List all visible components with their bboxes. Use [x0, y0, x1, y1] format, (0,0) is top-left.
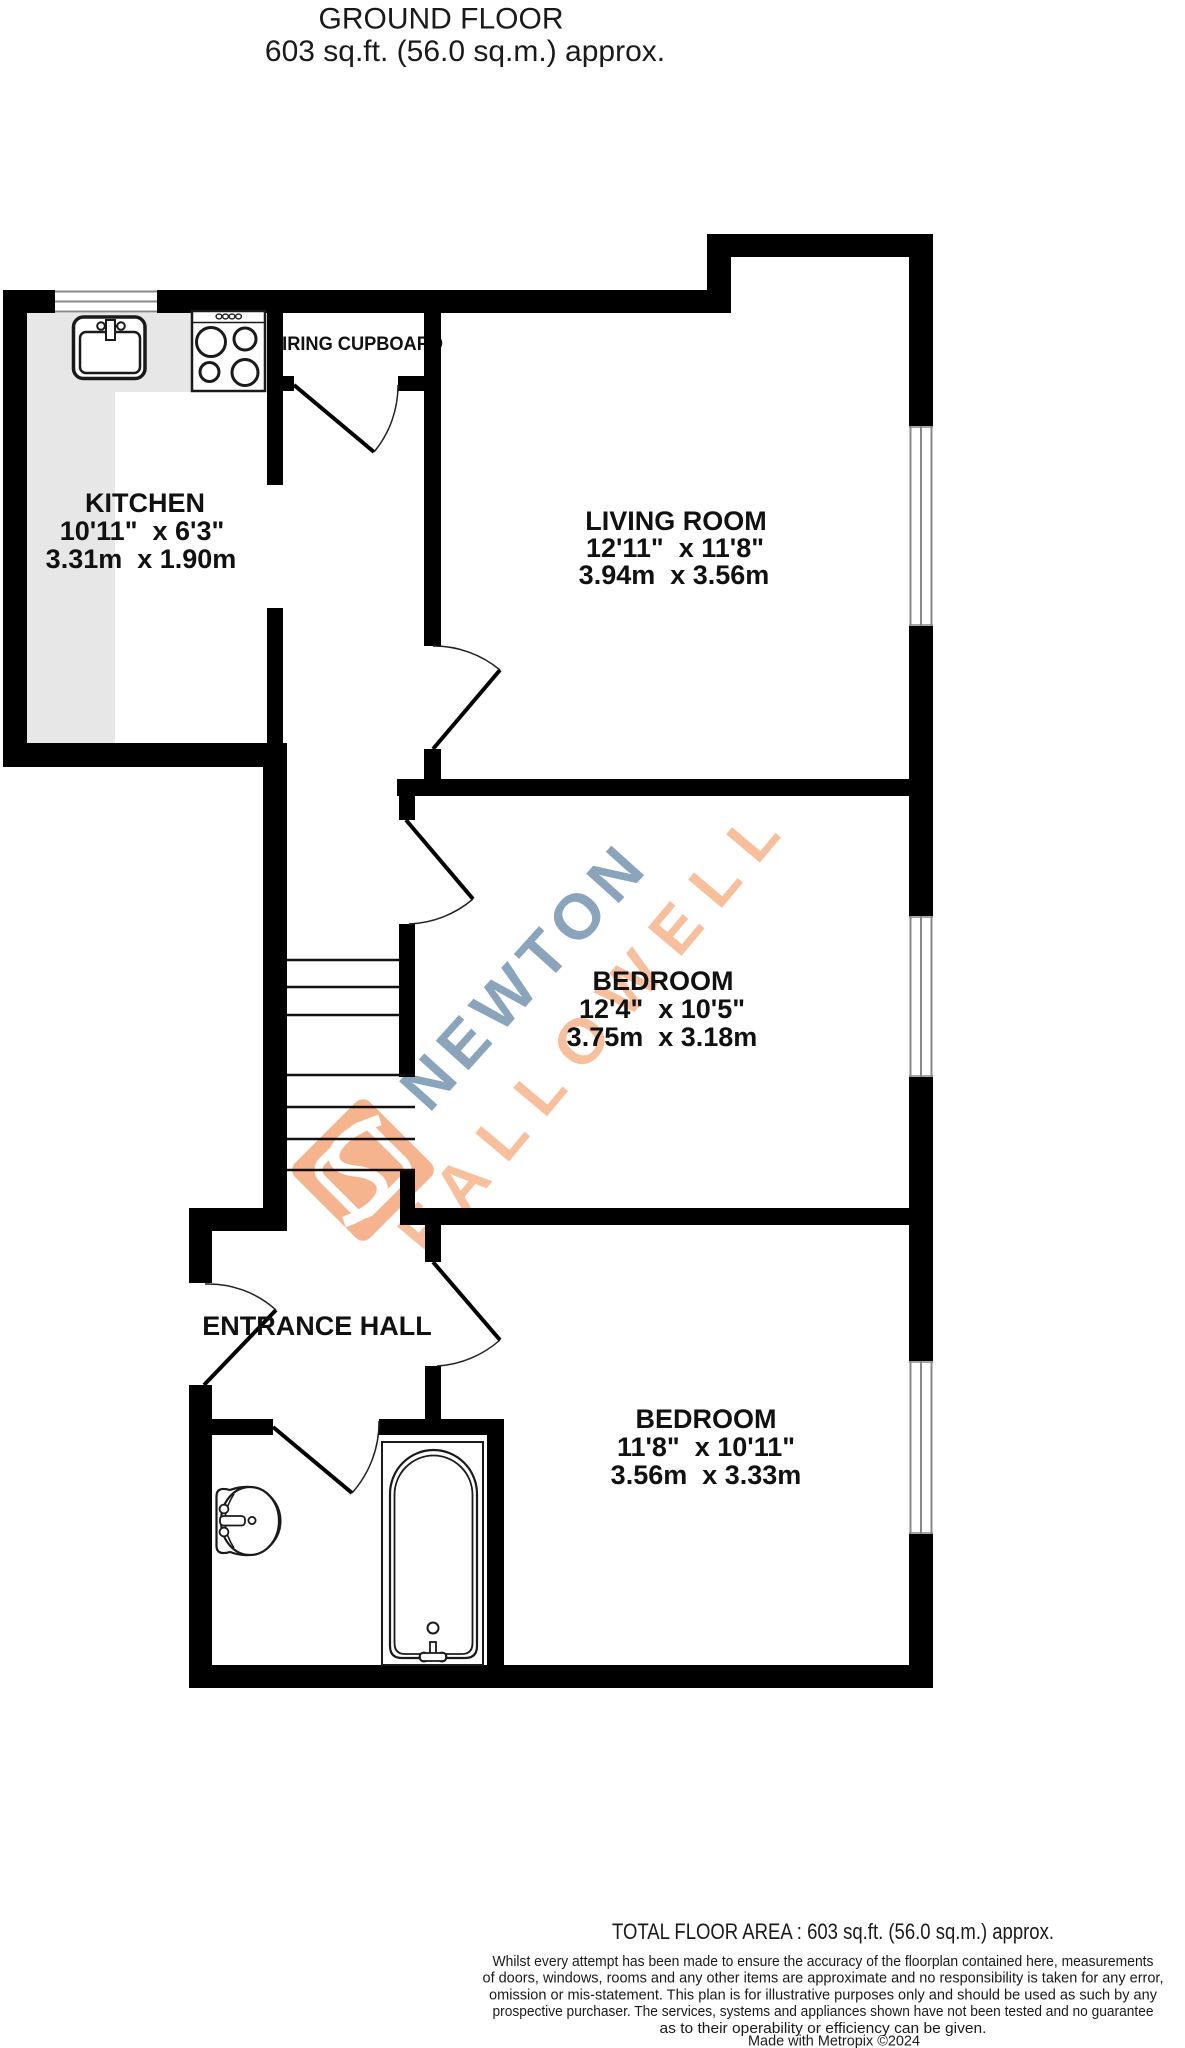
svg-text:KITCHEN: KITCHEN [85, 488, 205, 518]
svg-text:of doors, windows, rooms and a: of doors, windows, rooms and any other i… [483, 1970, 1164, 1987]
svg-text:3.56m x 3.33m: 3.56m x 3.33m [611, 1460, 802, 1490]
svg-text:omission or mis-statement. Thi: omission or mis-statement. This plan is … [489, 1986, 1157, 2003]
svg-text:603 sq.ft. (56.0 sq.m.) approx: 603 sq.ft. (56.0 sq.m.) approx. [265, 35, 665, 68]
svg-text:Whilst every attempt has been: Whilst every attempt has been made to en… [493, 1953, 1154, 1970]
svg-text:12'4" x 10'5": 12'4" x 10'5" [579, 994, 745, 1024]
svg-text:ENTRANCE HALL: ENTRANCE HALL [202, 1311, 432, 1341]
svg-text:BEDROOM: BEDROOM [636, 1404, 777, 1434]
svg-text:10'11" x 6'3": 10'11" x 6'3" [60, 516, 225, 546]
svg-text:3.94m x 3.56m: 3.94m x 3.56m [579, 560, 770, 590]
svg-text:3.75m x 3.18m: 3.75m x 3.18m [567, 1022, 758, 1052]
svg-text:12'11" x 11'8": 12'11" x 11'8" [586, 533, 764, 563]
svg-text:BEDROOM: BEDROOM [593, 966, 734, 996]
svg-text:3.31m x 1.90m: 3.31m x 1.90m [46, 544, 237, 574]
svg-text:GROUND FLOOR: GROUND FLOOR [318, 3, 563, 36]
svg-text:11'8" x 10'11": 11'8" x 10'11" [617, 1432, 795, 1462]
svg-text:Made with Metropix ©2024: Made with Metropix ©2024 [748, 2033, 920, 2048]
svg-text:TOTAL FLOOR AREA : 603 sq.ft.: TOTAL FLOOR AREA : 603 sq.ft. (56.0 sq.m… [612, 1919, 1054, 1944]
svg-text:prospective purchaser. The ser: prospective purchaser. The services, sys… [493, 2003, 1154, 2020]
svg-text:AIRING CUPBOARD: AIRING CUPBOARD [269, 334, 443, 355]
svg-text:LIVING ROOM: LIVING ROOM [585, 506, 767, 536]
